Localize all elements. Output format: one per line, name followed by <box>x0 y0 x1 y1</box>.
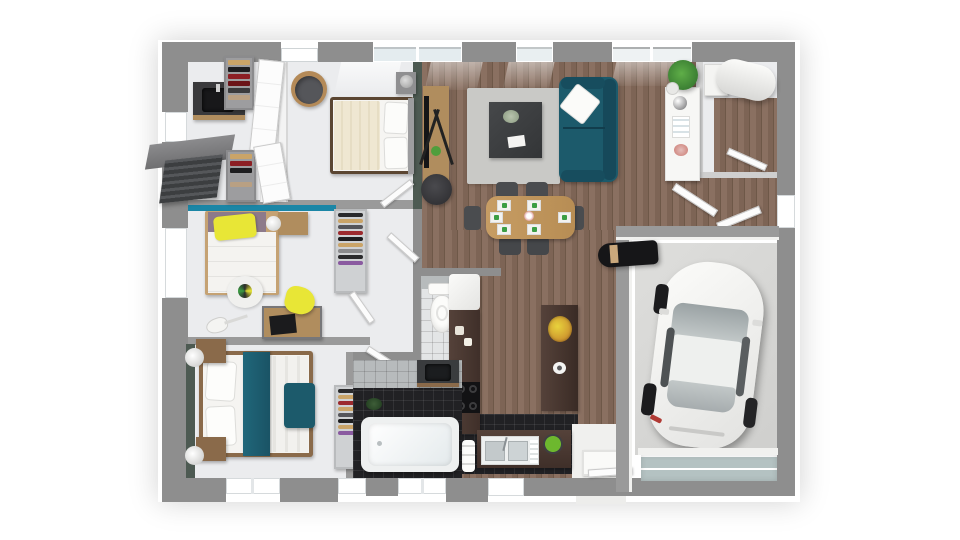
clothes-stack <box>230 161 252 166</box>
dining-chair-left <box>464 206 481 230</box>
south-bed-teal-throw <box>243 352 270 456</box>
ext-wall-bottom-garage <box>644 480 795 496</box>
faucet <box>502 437 507 451</box>
garage-door-threshold <box>638 448 778 455</box>
floorplan-render <box>0 0 960 540</box>
console-plant <box>431 146 441 156</box>
shoes-row <box>338 213 363 217</box>
window-top-3 <box>516 46 553 62</box>
window-left-2 <box>165 228 187 298</box>
ext-wall-left-a <box>162 42 188 112</box>
dining-chair-bottom-2 <box>527 237 549 255</box>
clothes-stack <box>228 88 250 93</box>
car-mirror-right <box>752 319 763 326</box>
wardrobe-rack-2 <box>226 150 256 202</box>
vanity-faucet <box>216 84 220 92</box>
ext-wall-top-c <box>462 42 516 62</box>
south-lamp-top <box>185 348 204 367</box>
sofa <box>559 77 618 182</box>
clothes-stack <box>228 95 250 100</box>
shoes-row <box>338 225 363 229</box>
ext-wall-bottom-a <box>162 478 226 502</box>
placemat <box>497 200 511 211</box>
placemat <box>527 224 541 235</box>
south-bed-pillow-1 <box>205 360 238 402</box>
teal-bench <box>284 383 315 428</box>
car <box>637 256 775 457</box>
black-bag-band <box>609 245 618 264</box>
shoes-row <box>338 261 363 265</box>
ext-wall-bottom-c <box>366 478 398 496</box>
kids-lamp <box>266 216 281 231</box>
clothes-stack <box>230 182 252 187</box>
shoe-cabinet-north <box>334 209 367 293</box>
fridge <box>449 274 480 310</box>
island-small-bowl <box>553 362 566 374</box>
ext-wall-right-b <box>777 228 795 496</box>
sideboard-decor <box>674 144 688 156</box>
shoes-row <box>338 237 363 241</box>
placemat <box>490 212 503 223</box>
window-bottom-3-mullion <box>421 478 424 494</box>
entry-step <box>576 496 626 504</box>
ext-wall-right-a <box>777 42 795 195</box>
ext-wall-left-c <box>162 298 188 478</box>
coffee-table-book <box>507 135 525 148</box>
sofa-cushion-line <box>563 127 605 129</box>
window-bottom-1-mullion <box>251 478 254 494</box>
clothes-stack <box>230 154 252 159</box>
counter-items <box>455 326 464 335</box>
ext-wall-top-b <box>318 42 373 62</box>
skylight-patch <box>611 60 675 86</box>
kids-rug-motif <box>238 284 252 298</box>
sofa-backrest <box>603 79 616 180</box>
sideboard-radio <box>673 96 687 110</box>
ext-wall-bottom-b <box>280 478 338 502</box>
shoes-row <box>338 219 363 223</box>
car-wheel-rear-right <box>743 397 759 428</box>
clothes-stack <box>228 60 250 65</box>
shoes-row <box>338 243 363 247</box>
placemat <box>527 200 541 211</box>
door-right <box>777 195 795 228</box>
shoes-row <box>338 249 363 253</box>
window-top-4-mullion <box>650 46 653 62</box>
ext-wall-top-d <box>553 42 612 62</box>
window-bottom-2 <box>338 478 366 494</box>
placemat <box>497 224 511 235</box>
placemat <box>558 212 571 223</box>
master-bed-pillow-1 <box>383 101 409 134</box>
sideboard-towels <box>672 116 690 138</box>
kids-pillow-yellow <box>213 213 257 241</box>
master-nightstand-lamp <box>400 75 413 88</box>
kids-laptop <box>269 314 297 336</box>
black-bag <box>597 240 659 268</box>
coffee-table-plant <box>503 110 519 123</box>
barrel-chair-seat <box>295 76 323 104</box>
toilet-seat-hole <box>436 305 448 321</box>
sofa-white-pillow <box>559 83 601 125</box>
kitchen-canisters <box>462 440 475 472</box>
kids-nightstand <box>278 212 308 235</box>
garage-door <box>641 455 777 481</box>
kitchen-sink-unit <box>481 436 539 465</box>
window-top-1 <box>281 48 318 62</box>
shoes-row <box>338 231 363 235</box>
front-door-opening <box>488 478 524 496</box>
sofa-armrest-bottom <box>561 170 605 182</box>
skylight-patch <box>335 62 401 92</box>
bathroom-vanity-basin <box>425 364 451 381</box>
clothes-stack <box>228 67 250 72</box>
garage-wall-top <box>616 226 779 240</box>
plant-pot <box>666 82 679 95</box>
table-centerpiece <box>524 211 534 221</box>
wall-utility-bottom <box>696 172 779 178</box>
black-stool <box>421 174 452 205</box>
island-fruit-bowl <box>548 316 572 342</box>
clothes-stack <box>230 175 252 180</box>
bathtub-drain <box>377 441 382 446</box>
counter-items-2 <box>464 338 472 346</box>
exterior-awning-slats <box>159 155 223 204</box>
car-mirror-left <box>659 308 670 315</box>
skylight-patch <box>503 60 555 88</box>
master-bed-pillow-2 <box>383 137 408 170</box>
ext-wall-bottom-d <box>446 478 488 502</box>
window-top-2-mullion <box>416 46 419 62</box>
clothes-stack <box>228 74 250 79</box>
south-lamp-bottom <box>185 446 204 465</box>
bathroom-plant <box>366 398 382 410</box>
clothes-stack <box>228 81 250 86</box>
master-headboard <box>408 98 414 174</box>
shoes-row <box>338 255 363 259</box>
clothes-stack <box>230 168 252 173</box>
wall-hall-living <box>413 209 422 273</box>
window-left-1 <box>165 112 187 142</box>
sink-plant-bowl <box>543 434 563 454</box>
master-bed-duvet <box>334 101 380 170</box>
wood-floor-strip <box>421 230 448 272</box>
wardrobe-rack-1 <box>224 56 254 110</box>
dining-chair-bottom-1 <box>499 237 521 255</box>
